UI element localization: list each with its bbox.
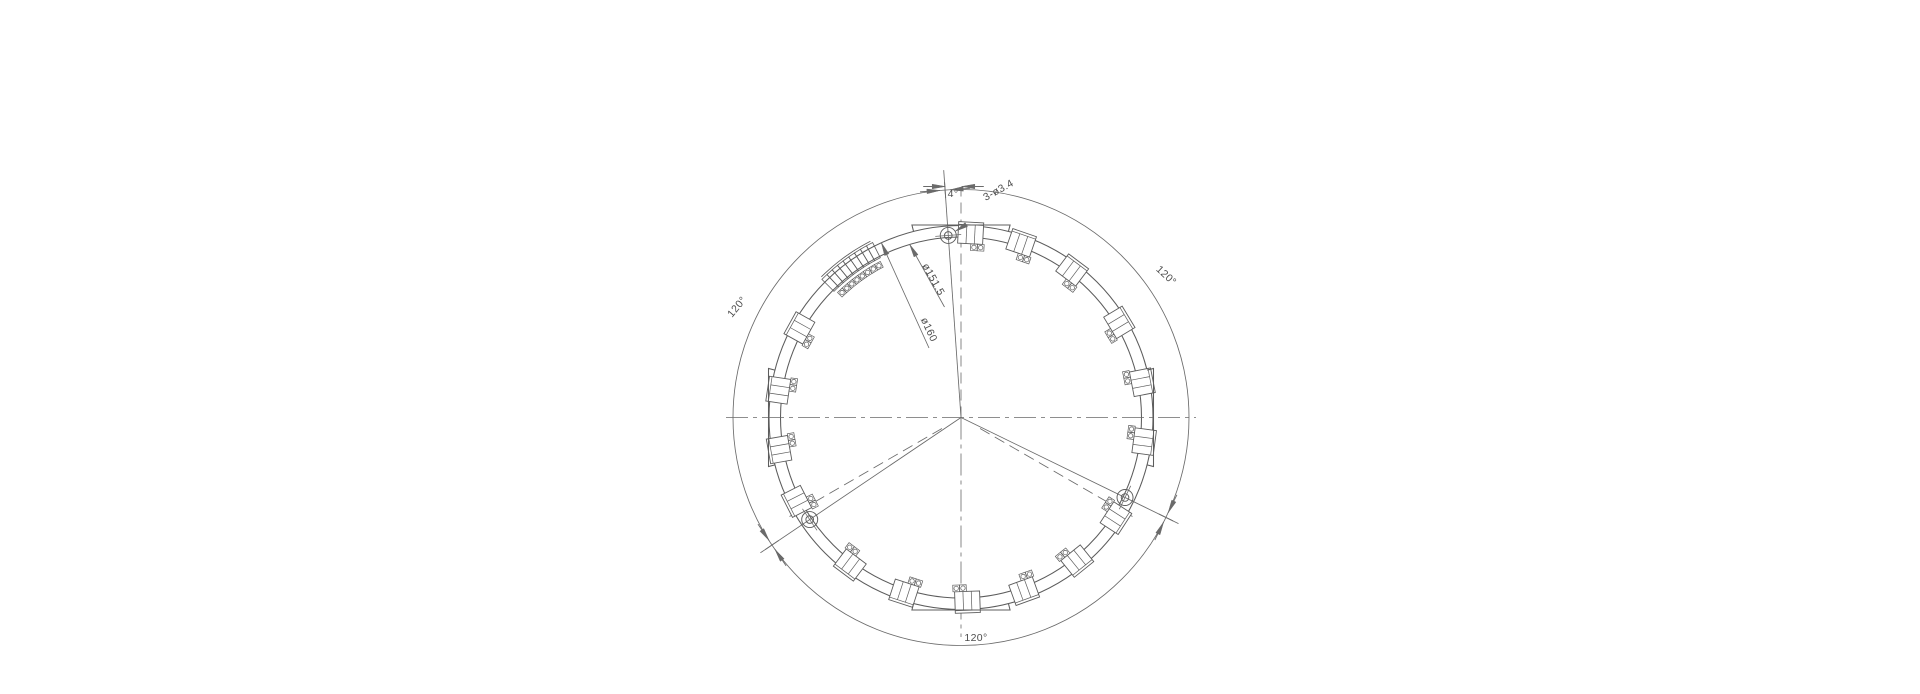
angle-offset-label: 4°: [948, 188, 959, 200]
terminal-block-pad-square: [788, 439, 796, 447]
outer-dia-leader: [881, 243, 929, 348]
terminal-block-pad-square: [790, 378, 798, 386]
holes-callout-label: 3-ø3.4: [981, 177, 1015, 203]
strip-cell: [843, 257, 858, 275]
terminal-block: [833, 549, 866, 581]
strip-pad-circle: [845, 286, 849, 290]
dimension-tick: [1159, 514, 1173, 521]
inner-diameter-label: ø151.5: [919, 261, 947, 298]
dimension-arrow-tail: [1168, 495, 1177, 513]
terminal-block-pad-square: [787, 433, 795, 441]
dimension-tick: [765, 541, 778, 550]
terminal-block: [1056, 254, 1089, 286]
terminal-block: [766, 376, 791, 404]
terminal-block-pad-square: [1128, 425, 1135, 432]
terminal-block: [1129, 368, 1155, 397]
strip-pad-circle: [866, 270, 870, 274]
technical-drawing-canvas: 4°3-ø3.4ø151.5ø160120°120°120°: [0, 0, 1920, 694]
terminal-block-pad-square: [1123, 370, 1131, 378]
strip-pad-circle: [871, 267, 875, 271]
dimension-arrow-tail: [758, 524, 769, 541]
strip-pad-circle: [877, 264, 881, 268]
angle-120-bottom-label: 120°: [964, 632, 987, 644]
dimension-arrowhead: [881, 243, 888, 256]
strip-pad-square: [875, 261, 884, 270]
dimension-arrowhead: [910, 244, 918, 256]
terminal-block-pad-square: [789, 385, 797, 393]
terminal-block: [1009, 577, 1040, 606]
strip-pad-circle: [855, 278, 859, 282]
dimension-arrow-tail: [775, 549, 786, 566]
drawing-stage: 4°3-ø3.4ø151.5ø160120°120°120°: [0, 0, 1920, 694]
angle-120-upper-right-label: 120°: [1153, 263, 1178, 288]
strip-pad-circle: [840, 290, 844, 294]
strip-pad-circle: [850, 282, 854, 286]
terminal-block: [1132, 428, 1157, 456]
hole-axis-line: [944, 170, 961, 417]
dimension-arrow-tail: [1155, 522, 1164, 540]
angle-120-upper-left-label: 120°: [725, 294, 749, 320]
strip-pad-circle: [860, 274, 864, 278]
terminal-block: [1006, 229, 1037, 257]
dimension-tick: [945, 182, 946, 198]
terminal-block-pad-square: [1127, 432, 1134, 439]
strip-cell: [837, 261, 853, 279]
